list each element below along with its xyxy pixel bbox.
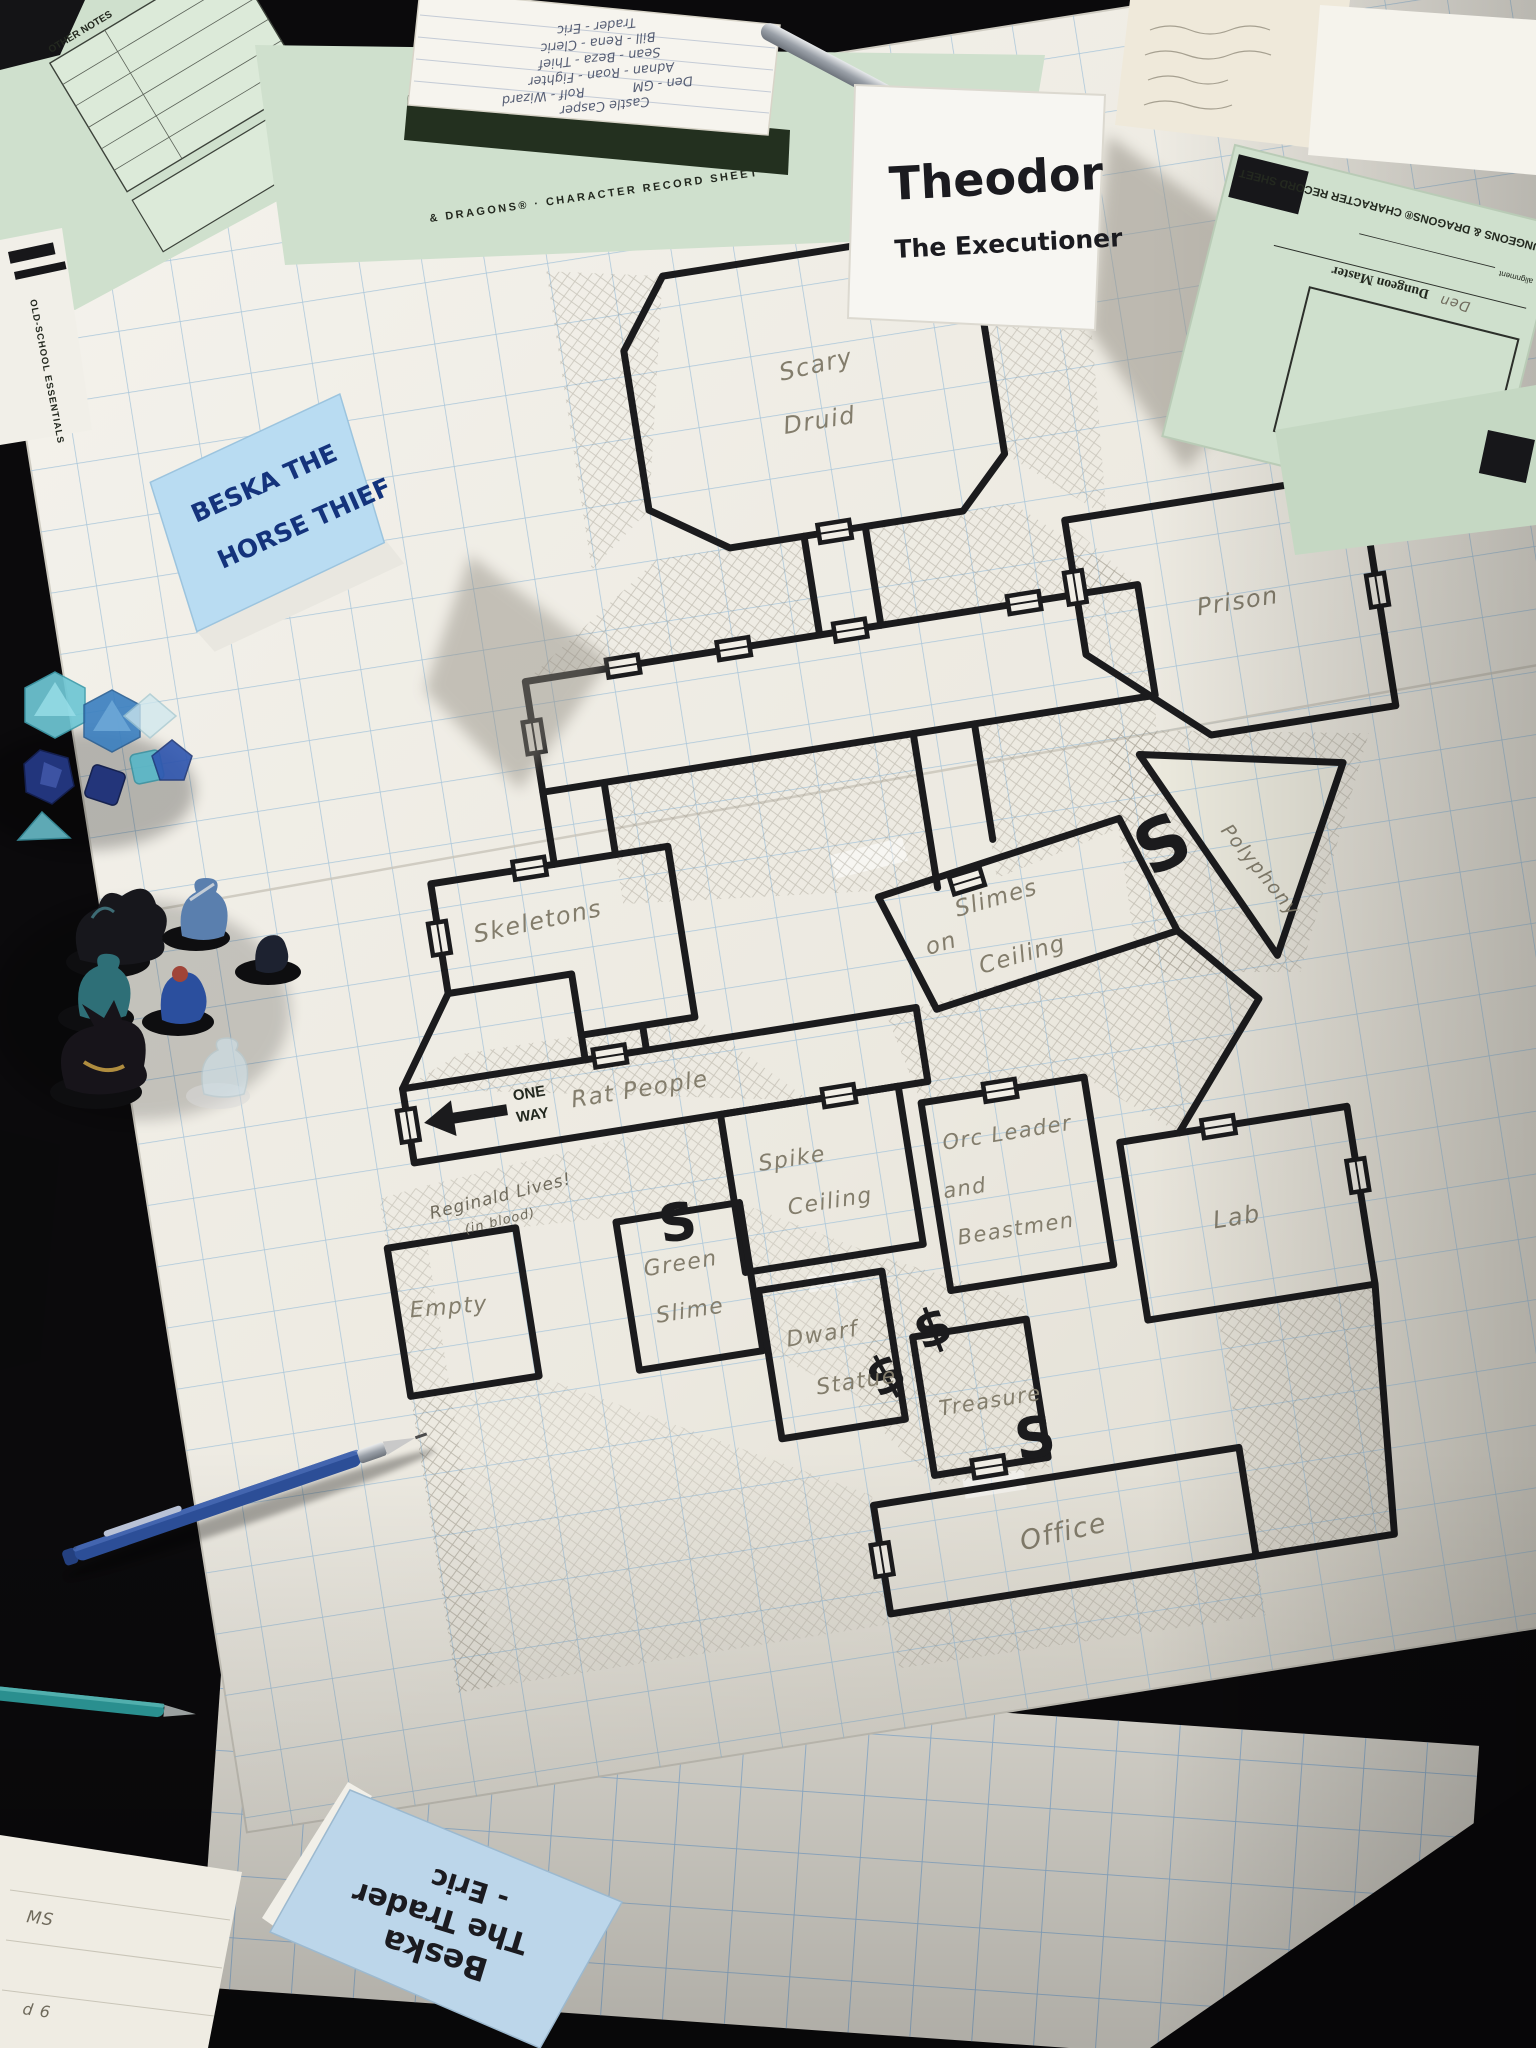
paper-fragment-text: d 6 — [21, 1999, 52, 2022]
door-symbol — [512, 857, 546, 880]
door-symbol — [1007, 591, 1041, 614]
door-symbol — [983, 1079, 1017, 1102]
theodor-name: Theodor — [888, 146, 1105, 211]
door-symbol — [397, 1108, 420, 1142]
bottom-left-paper: MS d 6 — [0, 1835, 242, 2048]
door-symbol — [817, 520, 851, 543]
paper-fragment-text: MS — [25, 1907, 55, 1931]
door-symbol — [822, 1084, 856, 1107]
door-symbol — [593, 1045, 627, 1068]
card-face — [848, 85, 1105, 330]
door-symbol — [606, 655, 640, 678]
door-symbol — [428, 921, 451, 955]
scene-canvas: ONE WAY S S $ $ S Scary Druid Prison Ske… — [0, 0, 1536, 2048]
door-symbol — [717, 637, 751, 660]
white-card — [1308, 5, 1536, 175]
door-symbol — [1064, 570, 1087, 604]
door-symbol — [833, 619, 867, 642]
photo-tabletop-rpg-scene: ONE WAY S S $ $ S Scary Druid Prison Ske… — [0, 0, 1536, 2048]
